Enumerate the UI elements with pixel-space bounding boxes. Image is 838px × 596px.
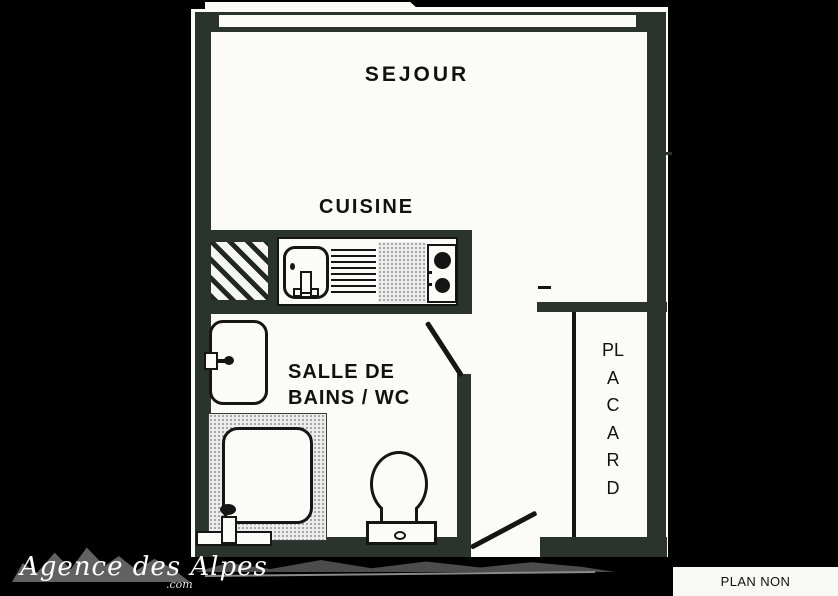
- cooktop-knob-tick-2: [428, 283, 432, 286]
- bathroom-label-line2: BAINS / WC: [288, 385, 410, 411]
- placard-door-tick: [538, 286, 551, 289]
- sink-faucet-foot-right: [310, 288, 319, 297]
- hatched-area-icon: [211, 242, 268, 300]
- basin-faucet-dot: [224, 356, 234, 365]
- agency-watermark-domain: .com: [166, 578, 193, 591]
- wall-joint-tick-right: [647, 152, 672, 155]
- room-label-placard: PLACARD: [601, 337, 625, 502]
- drainer-icon: [331, 249, 376, 294]
- wall-top-outer-line: [195, 12, 665, 15]
- agency-watermark: Agence des Alpes: [20, 552, 268, 582]
- room-label-cuisine: CUISINE: [319, 196, 414, 219]
- placard-front-line: [572, 312, 576, 537]
- window-sill-line: [195, 27, 665, 32]
- wall-bathroom-right-upper: [457, 230, 472, 312]
- cooktop-knob-tick-1: [428, 271, 432, 274]
- shower-drain: [220, 504, 236, 515]
- bathroom-label-line1: SALLE DE: [288, 359, 410, 385]
- burner-top: [434, 252, 451, 269]
- worktop-stipple: [378, 242, 426, 303]
- toilet-tank-button: [394, 531, 406, 540]
- wall-placard-top: [537, 302, 667, 312]
- wall-bottom-right: [540, 537, 667, 557]
- basin-faucet-box: [204, 352, 218, 370]
- burner-bottom: [435, 278, 450, 293]
- disclaimer-badge: PLAN NON CONTRACTUEL: [673, 567, 838, 596]
- room-label-bathroom: SALLE DE BAINS / WC: [288, 359, 410, 411]
- scan-edge-notch: [408, 0, 668, 7]
- sink-drain-dot: [290, 263, 295, 270]
- scan-edge-corner: [191, 0, 205, 9]
- floor-plan-image: SEJOUR CUISINE SALLE DE BAINS / WC PLACA…: [0, 0, 838, 596]
- room-label-sejour: SEJOUR: [352, 63, 482, 87]
- wall-bathroom-right-lower: [457, 374, 471, 538]
- shower-faucet: [221, 516, 237, 544]
- wall-right: [647, 12, 666, 557]
- sink-faucet-foot-left: [293, 288, 302, 297]
